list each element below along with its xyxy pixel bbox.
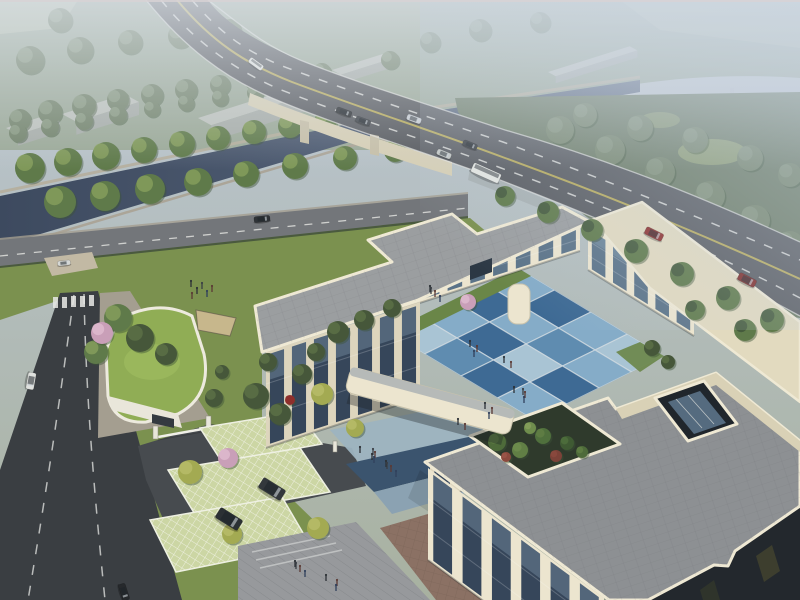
- top-edge-line: [0, 0, 800, 2]
- rendering-canvas: [0, 0, 800, 600]
- architectural-rendering: [0, 0, 800, 600]
- mist-overlay-right: [420, 0, 800, 330]
